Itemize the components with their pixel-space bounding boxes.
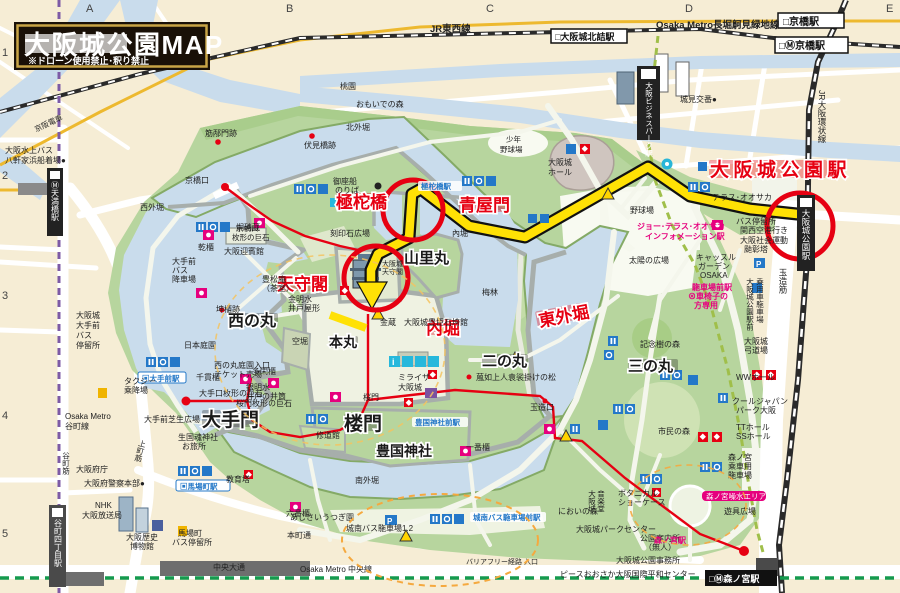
svg-text:馬場町: 馬場町 <box>178 528 202 538</box>
svg-text:大手前芝生広場: 大手前芝生広場 <box>144 414 200 424</box>
svg-text:テラス･オオサカ: テラス･オオサカ <box>712 193 772 202</box>
svg-text:ボタニカル: ボタニカル <box>618 489 658 498</box>
svg-text:城南バス駞車場1.2: 城南バス駞車場1.2 <box>346 523 414 533</box>
svg-text:伏見橋跡: 伏見橋跡 <box>304 140 336 150</box>
svg-text:ピースおおさか大阪国際平和センター: ピースおおさか大阪国際平和センター <box>560 569 696 579</box>
svg-text:乘車用: 乘車用 <box>728 461 752 471</box>
svg-text:玉造口: 玉造口 <box>530 402 554 412</box>
svg-text:1: 1 <box>2 47 8 59</box>
svg-text:□京橋駅: □京橋駅 <box>783 15 820 28</box>
svg-text:SSホール: SSホール <box>736 432 771 441</box>
svg-text:⊗車椅子の: ⊗車椅子の <box>688 291 728 301</box>
svg-text:おもいでの森: おもいでの森 <box>356 99 404 109</box>
svg-text:乘降場: 乘降場 <box>124 385 148 395</box>
svg-text:バス: バス <box>172 266 188 275</box>
svg-text:パーク大阪: パーク大阪 <box>736 405 776 415</box>
svg-text:A: A <box>86 3 94 15</box>
svg-text:OSAKA: OSAKA <box>700 271 728 280</box>
svg-text:野球場: 野球場 <box>630 205 654 215</box>
svg-text:大阪城パークセンター: 大阪城パークセンター <box>576 524 656 534</box>
svg-text:生国魂神社: 生国魂神社 <box>178 432 218 442</box>
svg-text:筋邴門跡: 筋邴門跡 <box>205 128 237 138</box>
svg-text:谷町筋: 谷町筋 <box>61 452 70 476</box>
svg-text:中央大通: 中央大通 <box>213 562 245 572</box>
svg-text:E: E <box>886 3 893 15</box>
svg-text:大阪迎賓館: 大阪迎賓館 <box>224 246 264 256</box>
svg-text:北外堀: 北外堀 <box>346 122 370 132</box>
svg-text:あじさいうつぎ園: あじさいうつぎ園 <box>290 512 354 522</box>
svg-text:Osaka Metro長堀鴚見緑地線: Osaka Metro長堀鴚見緑地線 <box>656 19 780 31</box>
svg-text:大阪城公園駅: 大阪城公園駅 <box>710 158 851 181</box>
svg-text:TTホール: TTホール <box>736 423 770 432</box>
svg-text:葻如上人袁裟掛けの松: 葻如上人袁裟掛けの松 <box>476 372 556 382</box>
svg-text:遊具広場: 遊具広場 <box>724 506 756 516</box>
svg-text:ショーケース: ショーケース <box>618 498 666 507</box>
svg-text:D: D <box>685 3 693 15</box>
svg-text:バス停留所: バス停留所 <box>172 537 212 547</box>
svg-text:森ノ宮: 森ノ宮 <box>728 452 752 462</box>
svg-text:ガーデン: ガーデン <box>698 261 730 271</box>
svg-text:井戸屋形: 井戸屋形 <box>288 303 320 313</box>
svg-text:関西空港行き: 関西空港行き <box>740 225 788 235</box>
svg-text:梅林: 梅林 <box>482 287 498 297</box>
svg-text:記念樹の森: 記念樹の森 <box>640 339 680 349</box>
svg-text:少年: 少年 <box>506 134 521 144</box>
svg-text:JR大阪環状線: JR大阪環状線 <box>817 90 827 143</box>
svg-text:のりば: のりば <box>335 186 359 195</box>
svg-text:銀明水: 銀明水 <box>246 382 270 392</box>
svg-text:C: C <box>486 3 494 15</box>
svg-text:二の丸: 二の丸 <box>482 352 528 370</box>
svg-text:□Ⓜ森ノ宮駅: □Ⓜ森ノ宮駅 <box>709 573 760 584</box>
svg-text:大阪城: 大阪城 <box>76 310 100 320</box>
svg-text:野球場: 野球場 <box>500 144 523 154</box>
svg-text:NHK: NHK <box>95 501 113 510</box>
svg-text:森ノ宮駅: 森ノ宮駅 <box>654 535 687 545</box>
svg-text:5: 5 <box>2 528 8 540</box>
svg-text:多閑櫃: 多閑櫃 <box>252 366 276 376</box>
svg-text:谷町線: 谷町線 <box>65 421 89 431</box>
svg-text:南外堀: 南外堀 <box>355 475 379 485</box>
svg-text:大阪水上バス: 大阪水上バス <box>5 145 53 155</box>
svg-text:ミライザ: ミライザ <box>398 373 430 382</box>
svg-text:修道館: 修道館 <box>316 430 340 440</box>
svg-text:天守閣: 天守閣 <box>382 267 403 276</box>
svg-text:大阪城公園駅: 大阪城公園駅 <box>801 208 811 260</box>
svg-text:降車場: 降車場 <box>172 274 196 284</box>
svg-text:青屋門: 青屋門 <box>459 195 510 215</box>
svg-text:森ノ宮噪水エリア: 森ノ宮噪水エリア <box>706 491 766 501</box>
svg-text:京橋口: 京橋口 <box>185 175 209 185</box>
svg-text:大阪城: 大阪城 <box>398 382 422 392</box>
svg-text:御座船: 御座船 <box>333 176 357 186</box>
svg-text:大阪城公園駅前: 大阪城公園駅前 <box>745 277 754 332</box>
svg-text:金蔵: 金蔵 <box>380 317 396 327</box>
svg-text:金明水: 金明水 <box>288 294 312 304</box>
svg-text:タクシー: タクシー <box>124 377 156 386</box>
svg-text:3: 3 <box>2 290 8 302</box>
svg-text:キャッスル: キャッスル <box>696 253 736 262</box>
svg-text:大阪城豊臣石垮館: 大阪城豊臣石垮館 <box>404 317 468 327</box>
svg-text:乾櫃: 乾櫃 <box>198 242 214 252</box>
svg-text:大阪城: 大阪城 <box>548 157 572 167</box>
svg-text:楼門: 楼門 <box>344 412 382 435</box>
svg-text:停留所: 停留所 <box>76 340 100 350</box>
svg-text:颱彰塔: 颱彰塔 <box>744 244 768 254</box>
svg-text:弓道場: 弓道場 <box>744 345 768 355</box>
svg-text:城見交番●: 城見交番● <box>680 94 717 104</box>
svg-text:西外堀: 西外堀 <box>140 202 164 212</box>
svg-text:▣馬場町駅: ▣馬場町駅 <box>180 481 218 491</box>
svg-text:i: i <box>392 357 395 367</box>
svg-text:日本庭園: 日本庭園 <box>184 340 216 350</box>
svg-text:ジョー･テラス･オオサカ: ジョー･テラス･オオサカ <box>637 222 725 231</box>
svg-text:三の丸: 三の丸 <box>628 357 674 375</box>
svg-text:山里丸: 山里丸 <box>404 249 450 267</box>
svg-text:豊国神社前駅: 豊国神社前駅 <box>415 417 460 427</box>
svg-text:本丸: 本丸 <box>329 334 358 350</box>
svg-text:大阪城公園事務所: 大阪城公園事務所 <box>616 555 680 565</box>
svg-text:市民の森: 市民の森 <box>658 426 690 436</box>
svg-text:空堀: 空堀 <box>292 336 308 346</box>
svg-text:2: 2 <box>2 170 8 182</box>
svg-text:ホール: ホール <box>548 168 572 177</box>
svg-text:豊国神社: 豊国神社 <box>376 443 432 459</box>
svg-text:桃園: 桃園 <box>340 81 356 91</box>
svg-text:教育塔: 教育塔 <box>226 474 250 484</box>
svg-text:城南バス駞車場前駅: 城南バス駞車場前駅 <box>473 512 541 522</box>
svg-text:大阪府警察本部●: 大阪府警察本部● <box>84 478 145 488</box>
svg-text:B: B <box>286 3 293 15</box>
svg-text:大手門: 大手門 <box>202 408 259 431</box>
svg-text:大手前: 大手前 <box>172 256 196 266</box>
svg-text:大阪放送局: 大阪放送局 <box>82 510 122 520</box>
svg-text:太陽の広場: 太陽の広場 <box>629 255 669 265</box>
svg-text:極柁橋: 極柁橋 <box>336 192 388 212</box>
svg-text:Osaka Metro 中央線: Osaka Metro 中央線 <box>300 564 372 574</box>
svg-text:方専用: 方専用 <box>694 300 718 310</box>
svg-text:千貫櫃: 千貫櫃 <box>196 372 220 382</box>
svg-text:本町通: 本町通 <box>287 530 311 540</box>
svg-text:大阪府庁: 大阪府庁 <box>76 464 108 474</box>
svg-text:博物館: 博物館 <box>130 541 154 551</box>
svg-text:バス: バス <box>76 331 92 340</box>
svg-text:インフォメーション駅: インフォメーション駅 <box>645 232 726 241</box>
svg-text:Ⓜ天満橋駅: Ⓜ天満橋駅 <box>51 181 60 222</box>
svg-text:においの森: においの森 <box>558 506 598 516</box>
svg-text:□Ⓜ京橋駅: □Ⓜ京橋駅 <box>779 39 826 52</box>
svg-text:內堀: 內堀 <box>452 229 468 238</box>
svg-text:P: P <box>756 260 762 269</box>
svg-text:□大阪城北詰駅: □大阪城北詰駅 <box>555 31 615 42</box>
svg-text:焖硝蔵: 焖硝蔵 <box>236 222 260 232</box>
svg-text:JR東西線: JR東西線 <box>430 23 471 35</box>
svg-text:谷町四丁目駅: 谷町四丁目駅 <box>54 519 63 568</box>
svg-text:クールジャパン: クールジャパン <box>732 397 788 406</box>
svg-text:お旅所: お旅所 <box>182 441 206 451</box>
svg-text:玉造筋: 玉造筋 <box>778 268 788 294</box>
svg-text:Osaka Metro: Osaka Metro <box>65 412 111 421</box>
svg-text:大手前: 大手前 <box>76 320 100 330</box>
svg-text:極柁橋駅: 極柁橋駅 <box>421 181 451 191</box>
svg-text:大阪城: 大阪城 <box>744 336 768 346</box>
svg-text:WWホール: WWホール <box>736 373 775 382</box>
svg-text:※ドローン使用禁止･釈り禁止: ※ドローン使用禁止･釈り禁止 <box>28 55 149 66</box>
svg-text:豊松庵: 豊松庵 <box>262 274 286 284</box>
svg-text:枚形の巨石: 枚形の巨石 <box>232 232 270 242</box>
svg-text:大阪社会運動: 大阪社会運動 <box>740 235 788 245</box>
svg-text:乘用車駞車場: 乘用車駞車場 <box>755 277 764 325</box>
svg-text:刻印石広場: 刻印石広場 <box>330 228 370 238</box>
svg-text:八軒家浜船着場●: 八軒家浜船着場● <box>5 155 66 165</box>
svg-text:大阪歴史: 大阪歴史 <box>126 532 158 542</box>
svg-text:バス停留所: バス停留所 <box>736 216 776 226</box>
svg-text:駞車場前駅: 駞車場前駅 <box>692 282 733 292</box>
svg-text:桜門: 桜門 <box>363 392 379 402</box>
svg-text:（茶室）: （茶室） <box>262 283 294 293</box>
svg-text:大阪ビジネスパーク駅: 大阪ビジネスパーク駅 <box>644 81 653 159</box>
svg-text:一番櫃: 一番櫃 <box>466 442 490 452</box>
svg-text:4: 4 <box>2 410 8 422</box>
svg-text:井戸の井筒: 井戸の井筒 <box>246 391 286 401</box>
